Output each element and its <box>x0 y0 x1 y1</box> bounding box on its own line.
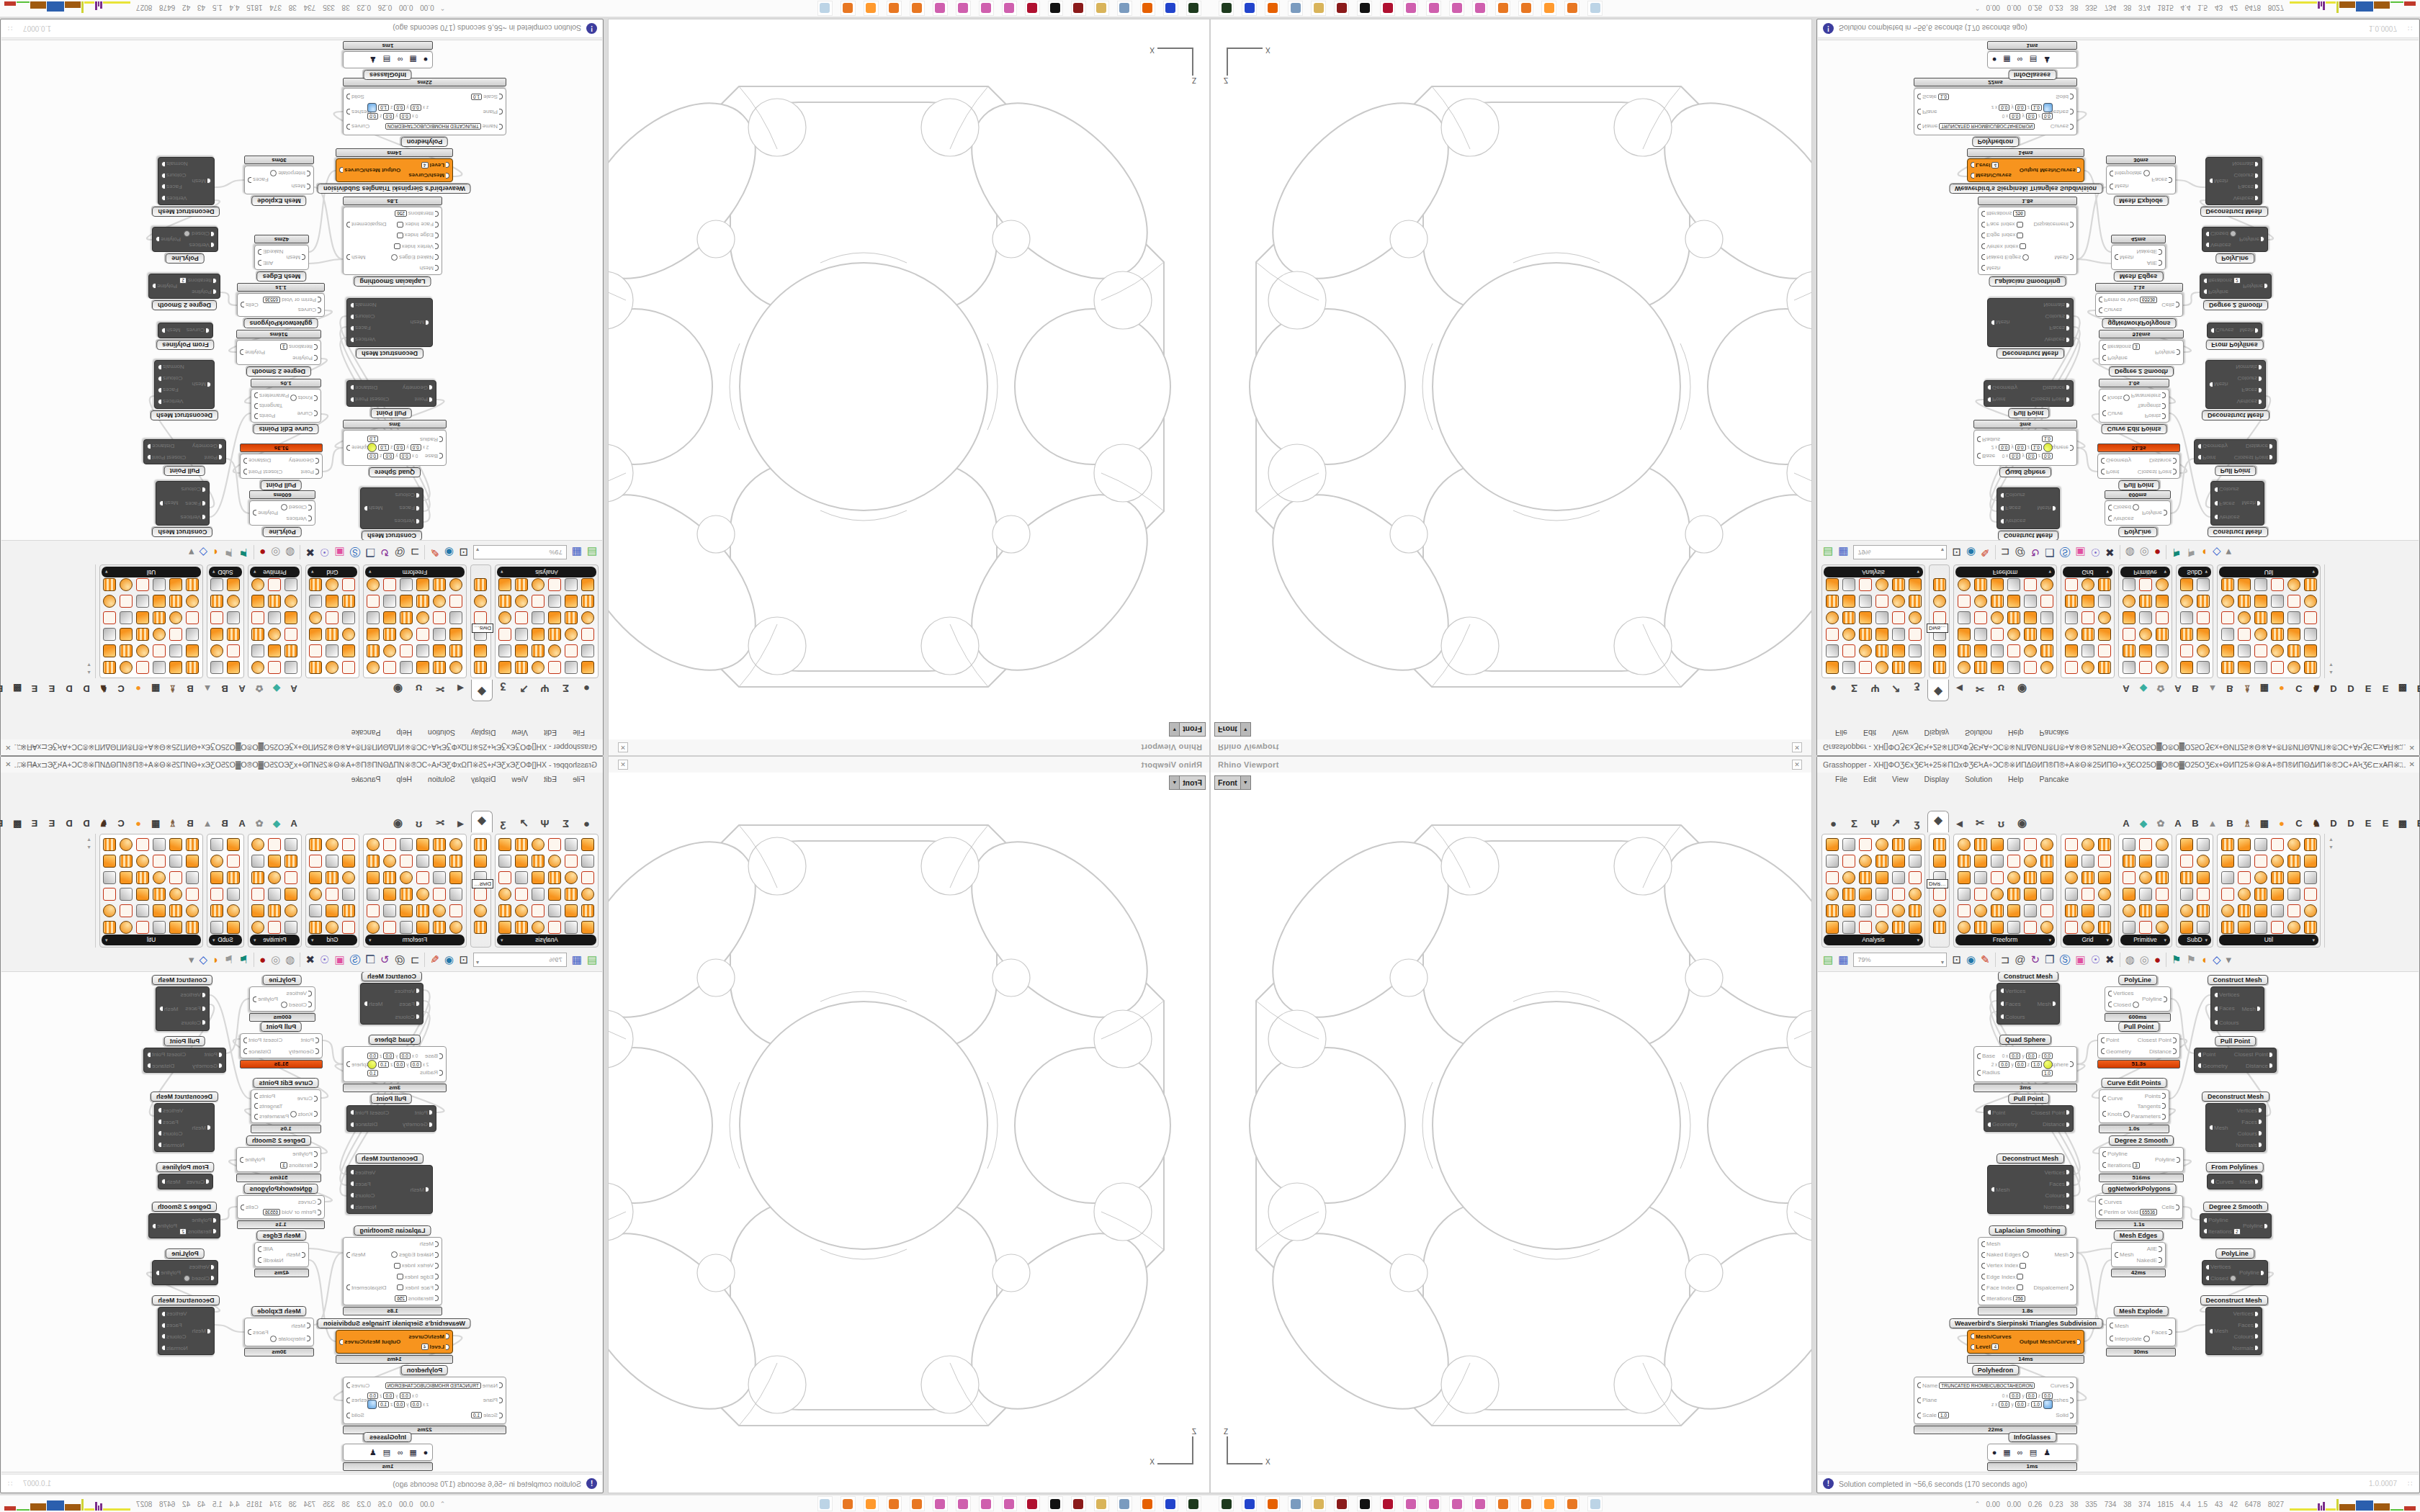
input-port-hook[interactable] <box>429 397 433 402</box>
input-port-hook[interactable] <box>211 1275 215 1281</box>
statusbar-grip[interactable]: ∷ <box>7 24 12 32</box>
port-value[interactable] <box>397 1284 403 1290</box>
ribbon-group-label[interactable]: Util▾ <box>2219 567 2318 577</box>
palette-icon[interactable] <box>118 886 135 902</box>
tab-main-5-selected[interactable]: ◆ <box>1927 680 1949 701</box>
tab-plugin-13[interactable]: D <box>2342 818 2359 832</box>
port-value[interactable]: 3 <box>2133 1162 2140 1169</box>
palette-icon[interactable] <box>2137 643 2154 660</box>
output-port-hook[interactable] <box>2164 510 2167 516</box>
node-deconstruct-mesh[interactable]: Deconstruct MeshMeshVerticesFacesColours… <box>2205 1307 2262 1355</box>
palette-icon[interactable] <box>530 643 547 660</box>
input-port-hook[interactable] <box>307 171 310 176</box>
output-port-hook[interactable] <box>346 254 350 260</box>
exit-icon[interactable]: ⊐ <box>2001 546 2010 560</box>
value-chip[interactable]: 0.0 <box>2026 114 2037 120</box>
input-port-hook[interactable] <box>2203 289 2207 294</box>
tab-main-5-selected[interactable]: ◆ <box>1927 811 1949 832</box>
palette-icon[interactable] <box>308 643 324 660</box>
palette-icon[interactable] <box>2252 869 2269 886</box>
calculator-icon[interactable] <box>1117 1 1132 16</box>
palette-icon[interactable] <box>2219 902 2236 919</box>
node-weaverbird-s-sierpinski-triangles-subdivision[interactable]: Weaverbird's Sierpinski Triangles Subdiv… <box>1967 158 2084 182</box>
palette-icon[interactable] <box>118 869 135 886</box>
port-value[interactable]: 256 <box>395 1295 407 1302</box>
blender-icon[interactable] <box>887 1 902 16</box>
palette-icon[interactable] <box>530 577 547 593</box>
palette-icon[interactable] <box>398 886 415 902</box>
palette-icon[interactable] <box>184 593 201 610</box>
tab-main-7[interactable]: ✂ <box>1970 680 1991 696</box>
palette-icon[interactable] <box>1906 593 1923 610</box>
firefox-icon[interactable] <box>864 1 879 16</box>
palette-icon[interactable] <box>209 869 225 886</box>
palette-icon[interactable] <box>415 660 431 676</box>
output-port-hook[interactable] <box>240 350 243 356</box>
palette-icon[interactable] <box>365 836 382 852</box>
tab-plugin-3[interactable]: A <box>233 680 251 694</box>
palette-icon[interactable] <box>225 610 242 626</box>
palette-icon[interactable] <box>1824 577 1840 593</box>
input-port-hook[interactable] <box>435 243 439 249</box>
palette-icon[interactable] <box>398 577 415 593</box>
tab-plugin-8[interactable]: ▦ <box>147 680 164 694</box>
value-chip[interactable]: 1.0 <box>367 436 378 443</box>
palette-icon[interactable] <box>1931 660 1948 676</box>
ribbon-group-label[interactable]: Analysis▾ <box>497 567 596 577</box>
palette-icon[interactable] <box>547 610 563 626</box>
input-port-hook[interactable] <box>2214 1006 2218 1012</box>
port-toggle[interactable] <box>290 1111 297 1117</box>
output-port-hook[interactable] <box>364 1001 367 1007</box>
blender-icon[interactable] <box>841 1496 856 1511</box>
input-port-hook[interactable] <box>435 233 439 238</box>
palette-icon[interactable] <box>283 919 300 935</box>
palette-icon[interactable] <box>2120 902 2137 919</box>
output-port-hook[interactable] <box>2159 1246 2162 1252</box>
input-port-hook[interactable] <box>1991 320 1994 325</box>
output-port-hook[interactable] <box>2259 1130 2262 1136</box>
inkscape-icon[interactable] <box>1357 1 1372 16</box>
palette-icon[interactable] <box>2038 593 2055 610</box>
menu-item-pancake[interactable]: Pancake <box>2032 773 2077 787</box>
palette-icon[interactable] <box>1989 577 2005 593</box>
palette-icon[interactable] <box>2269 919 2285 935</box>
statusbar-grip[interactable]: ∷ <box>2408 1480 2413 1488</box>
input-port-hook[interactable] <box>2099 297 2102 302</box>
palette-icon[interactable] <box>1931 902 1948 919</box>
palette-icon[interactable] <box>448 577 465 593</box>
value-chip[interactable]: 1.0 <box>2031 105 2042 112</box>
node-deconstruct-mesh[interactable]: Deconstruct MeshMeshVerticesFacesColours… <box>1987 298 2074 347</box>
folder-icon[interactable] <box>1311 1 1326 16</box>
palette-icon[interactable] <box>2285 643 2302 660</box>
ribbon-group-label[interactable]: Freeform▾ <box>1955 567 2055 577</box>
palette-icon[interactable] <box>118 836 135 852</box>
palette-icon[interactable] <box>580 660 596 676</box>
palette-icon[interactable] <box>448 919 465 935</box>
close-icon[interactable]: ✕ <box>2409 739 2415 755</box>
palette-icon[interactable] <box>341 836 357 852</box>
input-port-hook[interactable] <box>2099 307 2102 313</box>
input-port-hook[interactable] <box>314 355 318 361</box>
palette-icon[interactable] <box>2285 593 2302 610</box>
package-icon[interactable]: ▣ <box>334 546 344 560</box>
palette-icon[interactable] <box>2005 886 2022 902</box>
zoom-level-select[interactable]: 79%▼ <box>473 546 567 560</box>
ribbon-group-label[interactable]: Primitive▾ <box>250 935 300 945</box>
palette-icon[interactable] <box>1840 660 1857 676</box>
input-port-hook[interactable] <box>435 1263 439 1269</box>
output-port-hook[interactable] <box>2164 996 2167 1002</box>
tab-main-3[interactable]: ↗ <box>514 816 534 832</box>
save-file-icon[interactable]: ▦ <box>572 546 582 560</box>
tab-plugin-12[interactable]: D <box>2325 818 2342 832</box>
output-port-hook[interactable] <box>159 1006 163 1012</box>
tab-main-1[interactable]: Σ <box>555 680 576 695</box>
palette-icon[interactable] <box>2285 610 2302 626</box>
input-port-hook[interactable] <box>2214 992 2218 998</box>
palette-icon[interactable] <box>2236 577 2252 593</box>
palette-icon[interactable] <box>2302 593 2318 610</box>
palette-icon[interactable] <box>1972 836 1989 852</box>
palette-icon[interactable] <box>184 852 201 869</box>
output-port-hook[interactable] <box>2269 1063 2273 1068</box>
tab-plugin-10[interactable]: C <box>2290 680 2308 694</box>
input-port-hook[interactable] <box>1971 1344 1974 1350</box>
palette-icon[interactable] <box>365 919 382 935</box>
gha-icon[interactable]: ↻ <box>380 546 390 560</box>
palette-icon[interactable] <box>580 577 596 593</box>
port-value[interactable] <box>2017 1284 2023 1290</box>
palette-icon[interactable] <box>2038 902 2055 919</box>
palette-icon[interactable] <box>102 836 118 852</box>
output-port-hook[interactable] <box>2177 350 2180 356</box>
value-chip[interactable]: 0.0 <box>400 1392 411 1399</box>
palette-icon[interactable] <box>563 577 580 593</box>
palette-icon[interactable] <box>1955 643 1972 660</box>
input-port-hook[interactable] <box>302 1252 305 1258</box>
palette-icon[interactable] <box>1989 852 2005 869</box>
palette-icon[interactable] <box>2195 593 2211 610</box>
tab-plugin-10[interactable]: C <box>112 818 130 832</box>
gumball-gray-icon[interactable]: ◍ <box>2125 546 2135 560</box>
output-port-hook[interactable] <box>346 1252 350 1258</box>
palette-icon[interactable] <box>168 577 184 593</box>
palette-icon[interactable] <box>415 869 431 886</box>
node-pull-point[interactable]: Pull PointPointGeometryClosest PointDist… <box>2194 1048 2277 1073</box>
node-infoglasses[interactable]: InfoGlasses● ▦ ∞ ▤ ♟1ms <box>1987 1444 2077 1461</box>
palette-icon[interactable] <box>102 919 118 935</box>
palette-icon[interactable] <box>514 902 530 919</box>
tab-plugin-0[interactable]: A <box>285 680 302 694</box>
input-port-hook[interactable] <box>2102 1096 2106 1102</box>
palette-icon[interactable] <box>2079 626 2096 643</box>
cross-arrows-icon[interactable]: ✖ <box>305 953 315 967</box>
palette-icon[interactable] <box>2154 852 2170 869</box>
ribbon-overflow-strip[interactable]: ▲▼ <box>83 564 96 678</box>
krita-icon[interactable] <box>1449 1496 1464 1511</box>
palette-icon[interactable] <box>2005 836 2022 852</box>
output-port-hook[interactable] <box>158 364 161 370</box>
tab-main-5-selected[interactable]: ◆ <box>471 680 493 701</box>
palette-icon[interactable] <box>184 660 201 676</box>
palette-icon[interactable] <box>2285 919 2302 935</box>
tab-main-2[interactable]: Ψ <box>534 680 555 695</box>
close-icon[interactable]: ✕ <box>618 742 628 752</box>
palette-icon[interactable] <box>547 902 563 919</box>
input-port-hook[interactable] <box>315 1038 319 1043</box>
output-port-hook[interactable] <box>2159 260 2162 266</box>
palette-icon[interactable] <box>1873 902 1890 919</box>
output-port-hook[interactable] <box>161 184 165 189</box>
palette-icon[interactable] <box>530 902 547 919</box>
output-port-hook[interactable] <box>2255 328 2259 333</box>
palette-icon[interactable] <box>563 610 580 626</box>
menu-item-help[interactable]: Help <box>2000 773 2032 787</box>
palette-icon[interactable] <box>580 869 596 886</box>
output-port-hook[interactable] <box>241 302 244 308</box>
cross-arrows-icon[interactable]: ✖ <box>2105 953 2115 967</box>
folder-icon[interactable] <box>1311 1496 1326 1511</box>
input-port-hook[interactable] <box>1971 1333 1974 1339</box>
input-port-hook[interactable] <box>2102 1111 2106 1117</box>
palette-icon[interactable] <box>415 902 431 919</box>
palette-icon[interactable] <box>168 852 184 869</box>
node-polyline[interactable]: PolyLineVerticesClosedPolyline600ms <box>249 986 315 1012</box>
media-player-icon[interactable] <box>1071 1 1086 16</box>
input-port-hook[interactable] <box>1981 1241 1985 1247</box>
tab-plugin-10[interactable]: C <box>2290 818 2308 832</box>
palette-icon[interactable] <box>1972 886 1989 902</box>
palette-icon[interactable] <box>2079 610 2096 626</box>
palette-icon[interactable] <box>497 610 514 626</box>
palette-icon[interactable] <box>1824 610 1840 626</box>
palette-icon[interactable] <box>1824 919 1840 935</box>
blender-icon[interactable] <box>910 1 925 16</box>
palette-icon[interactable] <box>2096 593 2112 610</box>
palette-icon[interactable] <box>2269 577 2285 593</box>
node-mesh-explode[interactable]: Mesh ExplodeMeshInterpolateFaces30ms <box>2106 166 2176 194</box>
value-chip[interactable]: 0.0 <box>2026 1392 2037 1399</box>
palette-icon[interactable] <box>1873 852 1890 869</box>
palette-icon[interactable] <box>168 593 184 610</box>
palette-icon[interactable] <box>2005 902 2022 919</box>
input-port-hook[interactable] <box>207 179 211 184</box>
palette-icon[interactable] <box>2154 902 2170 919</box>
palette-icon[interactable] <box>2038 852 2055 869</box>
value-chip[interactable]: 0.0 <box>2015 445 2026 451</box>
palette-icon[interactable] <box>2005 869 2022 886</box>
palette-icon[interactable] <box>547 643 563 660</box>
palette-icon[interactable] <box>2252 610 2269 626</box>
krita-icon[interactable] <box>979 1496 994 1511</box>
node-pull-point[interactable]: Pull PointPointGeometryClosest PointDist… <box>346 1105 436 1132</box>
drop-icon[interactable]: ▾ <box>2226 953 2231 967</box>
palette-icon[interactable] <box>184 886 201 902</box>
palette-icon[interactable] <box>2079 660 2096 676</box>
palette-icon[interactable] <box>1955 610 1972 626</box>
palette-icon[interactable] <box>135 919 151 935</box>
folder-icon[interactable] <box>1094 1496 1109 1511</box>
node-infoglasses[interactable]: InfoGlasses● ▦ ∞ ▤ ♟1ms <box>1987 51 2077 68</box>
palette-icon[interactable] <box>2236 610 2252 626</box>
node-degree-2-smooth[interactable]: Degree 2 SmoothPolylineIterations3Polyli… <box>236 1147 321 1172</box>
value-chip[interactable]: 0.0 <box>2009 1392 2020 1399</box>
palette-icon[interactable] <box>102 610 118 626</box>
palette-icon[interactable] <box>448 643 465 660</box>
palette-icon[interactable] <box>1857 593 1873 610</box>
value-chip[interactable]: 0.0 <box>2009 454 2020 460</box>
palette-icon[interactable] <box>118 919 135 935</box>
palette-icon[interactable] <box>2137 577 2154 593</box>
palette-icon[interactable] <box>1931 919 1948 935</box>
palette-icon[interactable] <box>580 610 596 626</box>
output-port-hook[interactable] <box>161 1345 165 1351</box>
output-port-hook[interactable] <box>2066 1192 2070 1198</box>
palette-icon[interactable] <box>580 886 596 902</box>
output-port-hook[interactable] <box>2066 1110 2070 1115</box>
port-toggle[interactable] <box>391 1251 398 1258</box>
input-port-hook[interactable] <box>446 173 449 179</box>
gumball-gray-icon[interactable]: ◍ <box>285 953 295 967</box>
palette-icon[interactable] <box>1890 593 1906 610</box>
save-disk-icon[interactable] <box>1242 1496 1257 1511</box>
palette-icon[interactable] <box>2195 660 2211 676</box>
value-chip[interactable]: 0.0 <box>2015 1401 2026 1408</box>
value-chip[interactable]: 0.0 <box>2042 114 2053 120</box>
palette-icon[interactable] <box>184 643 201 660</box>
blender-icon[interactable] <box>910 1496 925 1511</box>
output-port-hook[interactable] <box>350 397 354 402</box>
palette-icon[interactable] <box>2096 610 2112 626</box>
output-port-hook[interactable] <box>254 1093 258 1099</box>
input-port-hook[interactable] <box>1987 384 1991 390</box>
palette-icon[interactable] <box>497 852 514 869</box>
palette-icon[interactable] <box>1857 919 1873 935</box>
output-port-hook[interactable] <box>2255 184 2259 189</box>
output-port-hook[interactable] <box>158 376 161 382</box>
palette-icon[interactable] <box>1840 902 1857 919</box>
value-chip[interactable]: 0.0 <box>2015 1061 2026 1068</box>
menu-item-display[interactable]: Display <box>1917 773 1957 787</box>
krita-icon[interactable] <box>956 1 971 16</box>
maximize-icon[interactable]: □ <box>2398 739 2403 755</box>
palette-icon[interactable] <box>472 643 489 660</box>
palette-icon[interactable] <box>2005 852 2022 869</box>
palette-icon[interactable] <box>431 577 448 593</box>
output-port-hook[interactable] <box>2176 302 2179 308</box>
port-value[interactable]: 4 <box>1991 1344 1999 1350</box>
output-port-hook[interactable] <box>2257 500 2261 506</box>
calculator-icon[interactable] <box>1288 1496 1303 1511</box>
output-port-hook[interactable] <box>254 1114 258 1120</box>
palette-icon[interactable] <box>2038 886 2055 902</box>
palette-icon[interactable] <box>2252 593 2269 610</box>
palette-icon[interactable] <box>1890 886 1906 902</box>
palette-icon[interactable] <box>2178 852 2195 869</box>
palette-icon[interactable] <box>382 902 398 919</box>
ribbon-group-label[interactable]: Analysis▾ <box>497 935 596 945</box>
palette-icon[interactable] <box>324 610 341 626</box>
palette-icon[interactable] <box>431 643 448 660</box>
node-polyline[interactable]: PolyLineVerticesClosedPolyline <box>152 227 218 252</box>
zoom-extents-icon[interactable]: ⊡ <box>459 546 468 560</box>
input-port-hook[interactable] <box>2214 500 2218 506</box>
port-value[interactable]: 2 <box>179 277 187 284</box>
input-port-hook[interactable] <box>416 505 420 511</box>
palette-icon[interactable] <box>1857 626 1873 643</box>
output-port-hook[interactable] <box>2173 458 2177 464</box>
palette-icon[interactable] <box>266 869 283 886</box>
palette-icon[interactable] <box>1906 626 1923 643</box>
input-port-hook[interactable] <box>2110 171 2113 176</box>
output-port-hook[interactable] <box>147 1052 151 1058</box>
pin-gray-icon[interactable]: ⚑ <box>2186 953 2195 967</box>
input-port-hook[interactable] <box>315 1048 319 1054</box>
half-sphere-icon[interactable]: ◖ <box>212 546 219 560</box>
palette-icon[interactable] <box>1840 593 1857 610</box>
output-port-hook[interactable] <box>243 458 247 464</box>
chevron-up-icon[interactable]: ⌃ <box>1975 4 1981 12</box>
gha-icon[interactable]: ↻ <box>2030 546 2040 560</box>
statusbar-grip[interactable]: ∷ <box>2408 24 2413 32</box>
palette-icon[interactable] <box>530 836 547 852</box>
palette-icon[interactable] <box>431 626 448 643</box>
tab-plugin-0[interactable]: A <box>2117 680 2135 694</box>
output-port-hook[interactable] <box>2066 1122 2070 1128</box>
palette-icon[interactable] <box>398 869 415 886</box>
tab-plugin-0[interactable]: A <box>285 818 302 832</box>
palette-icon[interactable] <box>530 610 547 626</box>
palette-icon[interactable] <box>1873 577 1890 593</box>
palette-icon[interactable] <box>563 643 580 660</box>
palette-icon[interactable] <box>118 852 135 869</box>
input-port-hook[interactable] <box>2197 454 2201 460</box>
palette-icon[interactable] <box>415 593 431 610</box>
value-chip[interactable]: 0.0 <box>411 1401 421 1408</box>
palette-icon[interactable] <box>1890 919 1906 935</box>
palette-icon[interactable] <box>1857 886 1873 902</box>
palette-icon[interactable] <box>472 577 489 593</box>
input-port-hook[interactable] <box>1987 1122 1991 1128</box>
node-deconstruct-mesh[interactable]: Deconstruct MeshMeshVerticesFacesColours… <box>154 1103 215 1152</box>
palette-icon[interactable] <box>497 886 514 902</box>
palette-icon[interactable] <box>2285 869 2302 886</box>
palette-icon[interactable] <box>2005 919 2022 935</box>
media-player-icon[interactable] <box>1334 1 1349 16</box>
preview-eye-icon[interactable]: ◉ <box>444 953 454 967</box>
tab-main-2[interactable]: Ψ <box>1865 817 1886 832</box>
palette-icon[interactable] <box>2120 610 2137 626</box>
palette-icon[interactable] <box>415 610 431 626</box>
output-port-hook[interactable] <box>241 1205 244 1210</box>
half-sphere-icon[interactable]: ◖ <box>2201 953 2208 967</box>
palette-icon[interactable] <box>497 593 514 610</box>
input-port-hook[interactable] <box>426 1187 429 1192</box>
node-weaverbird-s-sierpinski-triangles-subdivision[interactable]: Weaverbird's Sierpinski Triangles Subdiv… <box>336 1330 453 1354</box>
input-port-hook[interactable] <box>2102 355 2106 361</box>
tab-plugin-3[interactable]: A <box>2169 680 2187 694</box>
port-toggle[interactable] <box>2022 1251 2029 1258</box>
palette-icon[interactable] <box>415 852 431 869</box>
port-value[interactable]: 65536 <box>2140 297 2157 303</box>
palette-icon[interactable] <box>102 643 118 660</box>
palette-icon[interactable] <box>168 610 184 626</box>
tab-main-8[interactable]: ʊ <box>1991 817 2012 832</box>
tab-plugin-6[interactable]: B <box>2221 680 2238 694</box>
tab-plugin-4[interactable]: B <box>2187 818 2204 832</box>
